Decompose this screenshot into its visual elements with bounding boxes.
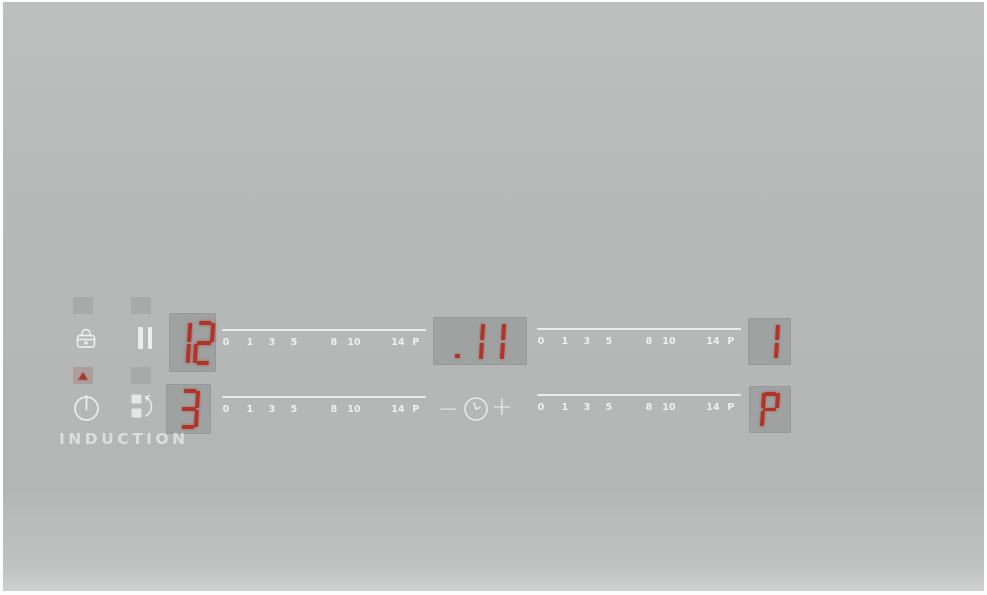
power-led-indicator	[73, 367, 93, 384]
timer-clock-icon[interactable]	[462, 395, 490, 423]
left-rear-power-display	[169, 313, 216, 372]
pause-led-indicator	[131, 297, 151, 314]
left-front-power-slider[interactable]: 013581014P	[224, 396, 424, 422]
timer-minus-button[interactable]: −	[438, 396, 459, 421]
right-rear-power-display	[748, 318, 791, 365]
left-rear-power-slider[interactable]: 013581014P	[224, 329, 424, 355]
left-front-power-display	[166, 384, 211, 434]
control-panel-surface: 013581014P 013581014P 013581014P 0135810…	[3, 2, 984, 591]
timer-plus-button[interactable]: +	[491, 394, 513, 420]
bridge-led-indicator	[131, 367, 151, 384]
child-lock-icon[interactable]	[72, 324, 100, 352]
power-icon[interactable]	[71, 392, 102, 423]
right-rear-power-slider[interactable]: 013581014P	[539, 328, 739, 354]
induction-brand-label: INDUCTION	[59, 430, 189, 448]
pause-icon[interactable]	[138, 327, 152, 349]
right-front-power-slider[interactable]: 013581014P	[539, 394, 739, 420]
timer-display	[433, 317, 527, 365]
bridge-icon[interactable]	[129, 392, 161, 421]
right-front-power-display	[749, 386, 791, 433]
lock-led-indicator	[73, 297, 93, 314]
induction-hob-control-panel: { "panel": { "brand": "INDUCTION", "colo…	[0, 0, 987, 595]
